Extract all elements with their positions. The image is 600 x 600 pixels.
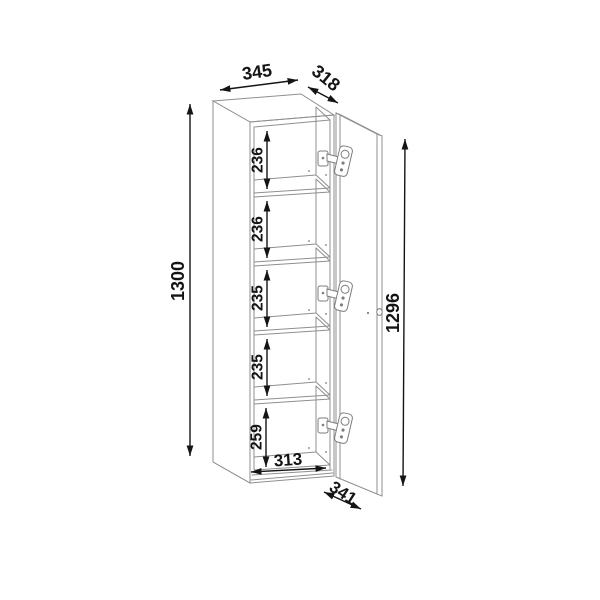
- hinge-screw: [322, 157, 325, 160]
- dimension-depth-top: 318: [308, 61, 344, 103]
- cabinet-technical-drawing: 345 318 1300 1296 236 236 235 235 259 31…: [0, 0, 600, 600]
- left-side-panel: [213, 101, 250, 483]
- shelf-back-edge: [254, 175, 316, 180]
- shelf-3: [254, 313, 330, 335]
- shelf-back-edge: [254, 244, 316, 249]
- dim-label-width-top: 345: [241, 60, 274, 84]
- shelf-back-edge: [254, 382, 316, 387]
- hinge-screw: [322, 424, 325, 427]
- pin-hole: [308, 378, 310, 380]
- pin-hole: [308, 447, 310, 449]
- shelf-pin-holes: [308, 170, 327, 453]
- cabinet-carcass: [213, 94, 334, 483]
- shelf-2: [254, 244, 330, 266]
- dim-label-door-height: 1296: [383, 293, 403, 333]
- dimension-compartment-4: 235: [250, 339, 268, 396]
- pin-hole: [325, 244, 327, 246]
- pin-hole: [308, 240, 310, 242]
- dimension-interior-width: 313: [251, 450, 326, 472]
- dim-label-compartment-5: 259: [249, 424, 266, 450]
- dim-label-interior-width: 313: [273, 450, 303, 471]
- dimension-compartment-3: 235: [250, 270, 268, 327]
- pin-hole: [308, 170, 310, 172]
- dim-label-height-left: 1300: [168, 261, 188, 301]
- shelf-back-edge: [254, 313, 316, 318]
- pin-hole: [325, 451, 327, 453]
- hinge-screw: [322, 292, 325, 295]
- floor-right-diagonal: [316, 452, 330, 465]
- dim-label-compartment-1: 236: [250, 147, 267, 173]
- dim-label-compartment-3: 235: [250, 285, 267, 311]
- knob-screw-hole: [367, 312, 369, 314]
- dim-label-compartment-4: 235: [250, 354, 267, 380]
- dimension-door-height: 1296: [383, 139, 405, 486]
- drawing-canvas: 345 318 1300 1296 236 236 235 235 259 31…: [0, 0, 600, 600]
- dimension-compartment-5: 259: [249, 408, 267, 467]
- door-knob: [377, 309, 382, 316]
- dimension-width-top: 345: [220, 60, 298, 90]
- pin-hole: [308, 309, 310, 311]
- shelf-1: [254, 175, 330, 197]
- pin-hole: [325, 313, 327, 315]
- pin-hole: [325, 382, 327, 384]
- dimension-height-left: 1300: [168, 104, 190, 456]
- dimension-compartment-2: 236: [250, 201, 268, 258]
- dim-label-compartment-2: 236: [250, 216, 267, 242]
- pin-hole: [325, 174, 327, 176]
- dimension-compartment-1: 236: [250, 131, 268, 189]
- dimension-arrow: [403, 139, 405, 486]
- shelf-4: [254, 382, 330, 404]
